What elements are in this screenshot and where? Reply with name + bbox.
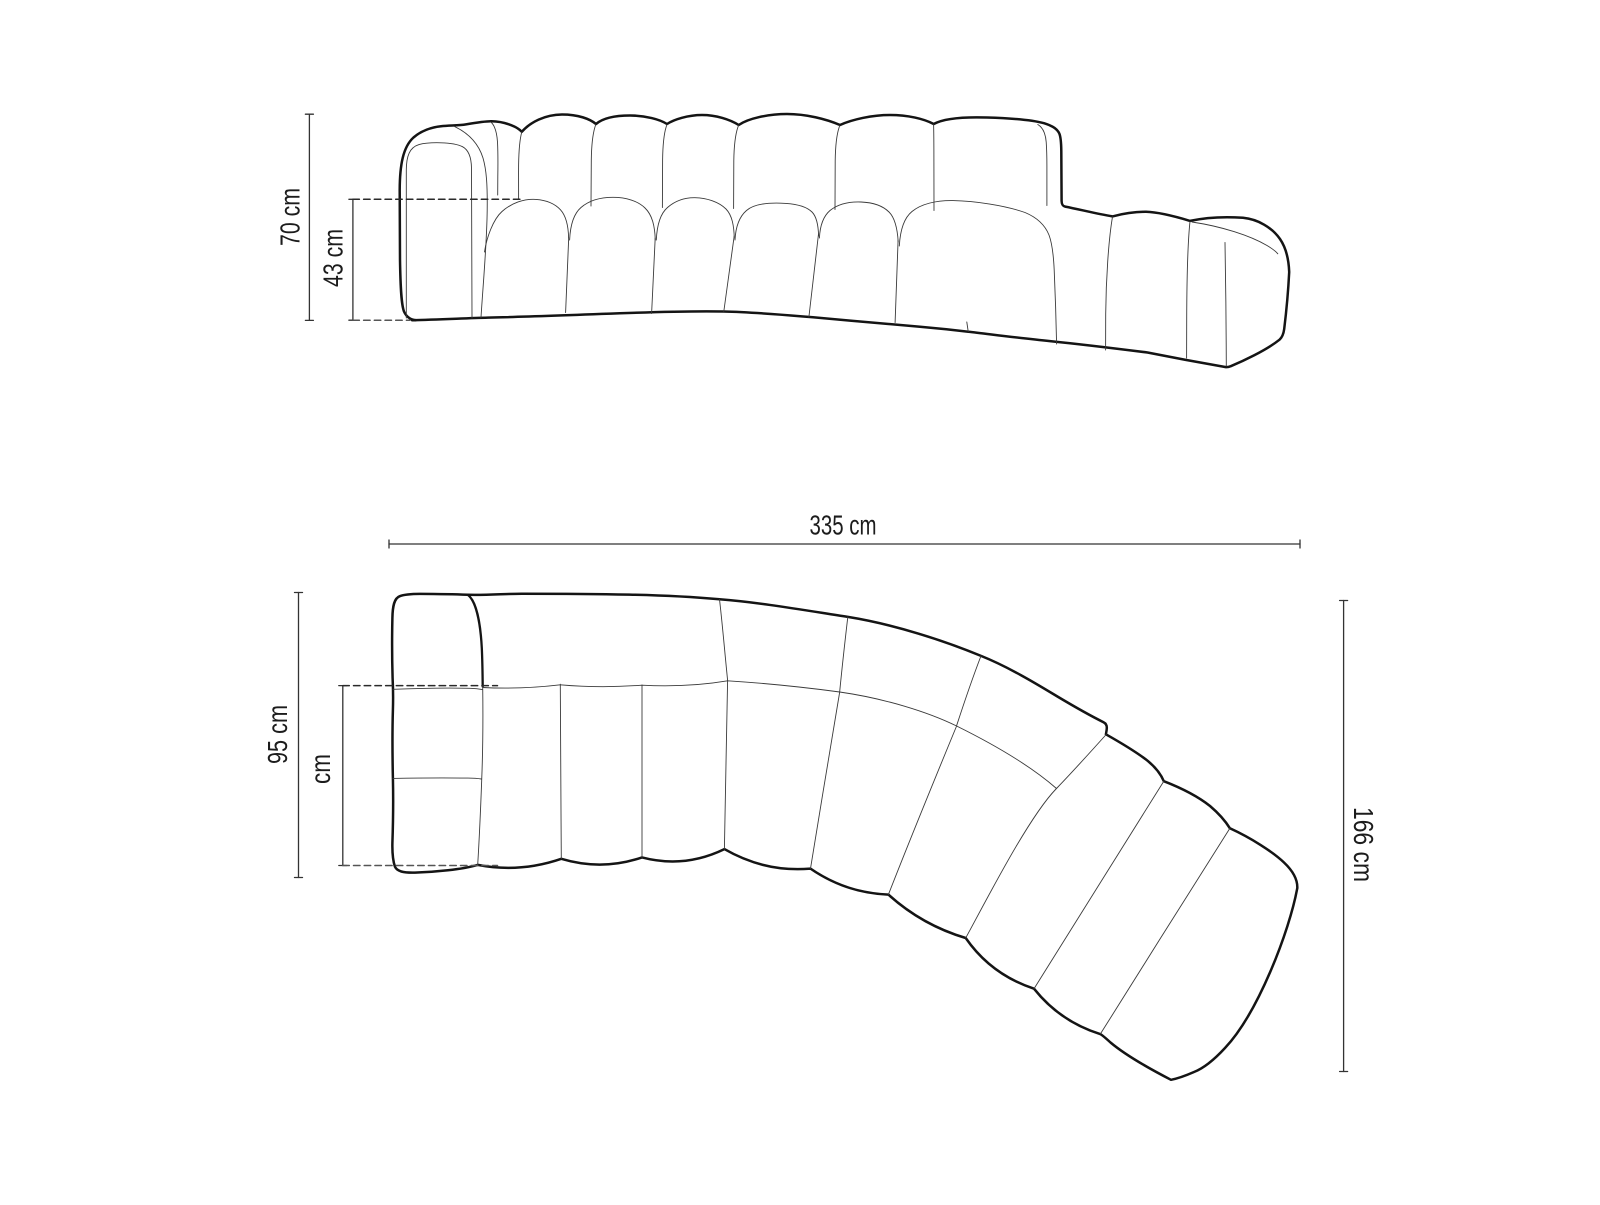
svg-text:166 cm: 166 cm [1348, 807, 1379, 882]
svg-text:70 cm: 70 cm [275, 188, 306, 246]
svg-text:43 cm: 43 cm [318, 229, 349, 287]
svg-text:95 cm: 95 cm [262, 705, 293, 764]
svg-text:cm: cm [305, 754, 336, 784]
svg-text:335 cm: 335 cm [810, 510, 877, 541]
